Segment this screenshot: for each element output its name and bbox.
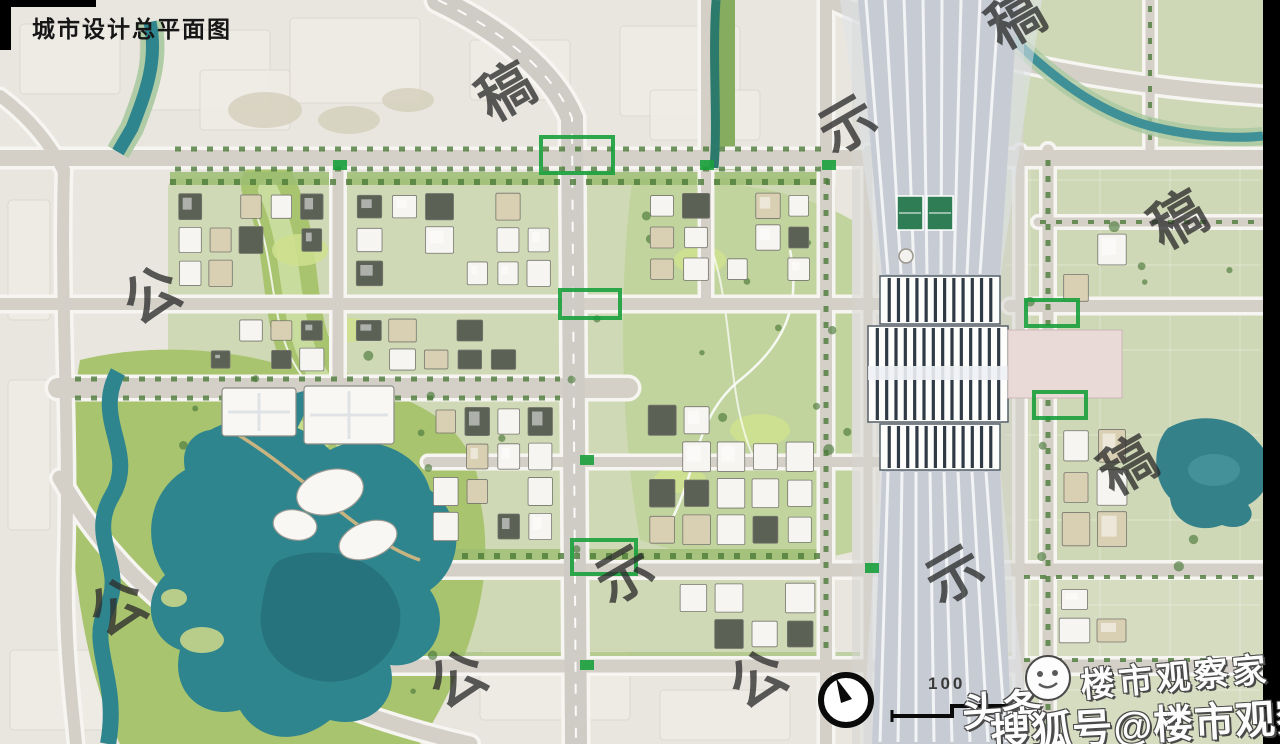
page-title: 城市设计总平面图: [32, 10, 232, 44]
scale-bar-label: 100: [928, 674, 965, 694]
frame-edge-right: [1263, 0, 1280, 744]
north-arrow-icon: [821, 675, 871, 725]
frame-edge-topleft-h: [0, 0, 96, 7]
master-plan-canvas: 城市设计总平面图 稿 示 稿 公 稿 稿 公 示 示 公 公 头条 楼市观察家 …: [0, 0, 1280, 744]
master-plan-map: [0, 0, 1280, 744]
frame-edge-topleft-v: [0, 0, 11, 50]
watermark-logo-icon: [1022, 652, 1074, 704]
